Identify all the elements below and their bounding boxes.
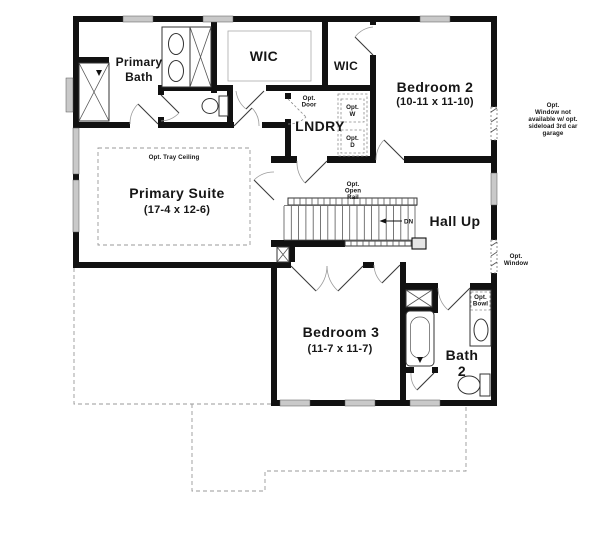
opt-washer-label-line1: Opt. xyxy=(346,104,359,111)
wic-door xyxy=(236,91,264,109)
opt-window-note-line2: Window xyxy=(504,260,528,267)
tray-ceiling-note: Opt. Tray Ceiling xyxy=(149,154,200,161)
opt-door-note-line2: Door xyxy=(302,102,317,109)
bedroom2-door xyxy=(376,140,404,160)
bath2-door xyxy=(438,288,470,310)
opt-dryer-label-line2: D xyxy=(350,142,355,149)
stair-newel-post xyxy=(412,238,426,249)
primary-linen-closet xyxy=(190,27,211,87)
primary-suite-label: Primary Suite xyxy=(129,185,224,201)
window-note-line1: Opt. xyxy=(547,102,560,109)
lower-floor-outline-bottom xyxy=(192,404,466,491)
opt-dryer-label-line1: Opt. xyxy=(346,135,359,142)
window-top-bath xyxy=(123,16,153,22)
bath2-label-line1: Bath xyxy=(446,347,479,363)
bath2-sink xyxy=(474,319,488,341)
water-closet-toilet xyxy=(202,96,228,116)
bedroom3-label: Bedroom 3 xyxy=(303,324,380,340)
window-bottom-bedroom3-2 xyxy=(345,400,375,406)
stair-treads xyxy=(284,206,415,240)
shower xyxy=(79,63,109,121)
sink-2 xyxy=(169,61,184,82)
window-note-line3: available w/ opt. xyxy=(528,116,577,123)
laundry-hall-door xyxy=(297,161,327,183)
optional-window-bedroom2 xyxy=(491,107,497,140)
hall-up-label: Hall Up xyxy=(429,213,480,229)
bath2-inner-door xyxy=(411,373,434,390)
bedroom3-dims: (11-7 x 11-7) xyxy=(308,343,373,355)
window-bottom-bath2 xyxy=(410,400,440,406)
floor-plan-page: Primary Bath WIC WIC Bedroom 2 (10-11 x … xyxy=(0,0,615,539)
primary-bath-door xyxy=(130,104,158,124)
hall-linen-closet xyxy=(277,247,289,262)
floor-plan-drawing: Primary Bath WIC WIC Bedroom 2 (10-11 x … xyxy=(0,0,615,539)
wic-bedroom2-label: WIC xyxy=(334,59,358,73)
opt-washer-label-line2: W xyxy=(350,111,356,118)
bedroom2-label: Bedroom 2 xyxy=(397,79,474,95)
suite-hallway-door xyxy=(234,108,259,126)
primary-bath-label-line2: Bath xyxy=(125,70,153,84)
stair-edges xyxy=(284,206,417,241)
window-note-line5: garage xyxy=(543,130,564,137)
window-top-bedroom2 xyxy=(420,16,450,22)
lower-floor-outline-left xyxy=(74,268,271,404)
laundry-label: LNDRY xyxy=(295,118,345,134)
window-top-wic xyxy=(203,16,233,22)
bedroom2-dims: (10-11 x 11-10) xyxy=(396,96,474,108)
opt-window-note-line1: Opt. xyxy=(510,253,523,260)
opt-bowl-note-line2: Bowl xyxy=(473,301,488,308)
primary-bath-label-line1: Primary xyxy=(116,55,163,69)
window-note-line4: sideload 3rd car xyxy=(528,123,578,130)
window-bottom-bedroom3-1 xyxy=(280,400,310,406)
window-right-hall xyxy=(491,173,497,205)
bathtub xyxy=(406,311,434,366)
optional-window-hall xyxy=(491,240,497,273)
wic2-door xyxy=(355,27,373,55)
window-left-bath xyxy=(66,78,73,112)
sink-1 xyxy=(169,34,184,55)
window-note-line2: Window not xyxy=(535,109,571,116)
window-left-suite-2 xyxy=(73,180,79,232)
bath2-label-line2: 2 xyxy=(458,363,466,379)
primary-vanity xyxy=(162,27,190,87)
open-rail-note-line3: Rail xyxy=(347,194,359,201)
bath2-linen-closet xyxy=(406,290,432,307)
window-left-suite-1 xyxy=(73,128,79,174)
down-direction-arrow xyxy=(380,219,403,224)
primary-suite-door xyxy=(254,172,274,200)
down-label: DN xyxy=(404,219,414,226)
bedroom3-double-door xyxy=(291,266,363,291)
wic-primary-label: WIC xyxy=(250,48,278,64)
primary-suite-dims: (17-4 x 12-6) xyxy=(144,204,210,216)
labels: Primary Bath WIC WIC Bedroom 2 (10-11 x … xyxy=(116,48,578,379)
bath-corridor-door xyxy=(374,265,400,283)
